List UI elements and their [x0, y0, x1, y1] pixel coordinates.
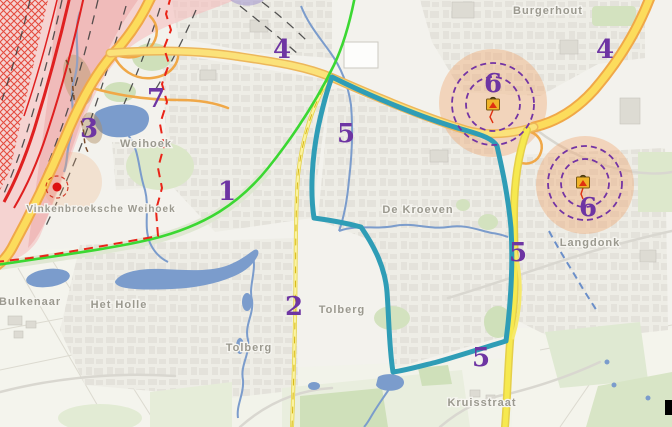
zone-number-5-east: 5: [509, 238, 527, 268]
zone-number-1: 1: [218, 177, 236, 207]
place-label: Tolberg: [319, 304, 366, 316]
zone-number-4-east: 4: [596, 35, 614, 65]
place-label: Bulkenaar: [0, 296, 61, 308]
zone-number-4-west: 4: [273, 35, 291, 65]
place-label: De Kroeven: [382, 204, 453, 216]
zone-number-6-east: 6: [579, 193, 597, 223]
zone-number-2: 2: [285, 292, 303, 322]
zone-number-6-north: 6: [484, 69, 502, 99]
place-label: Weihoek: [120, 138, 172, 150]
clipped-edge-artifact: [665, 400, 672, 415]
zone-number-3: 3: [80, 114, 98, 144]
place-label: Tolberg: [226, 342, 273, 354]
map-canvas[interactable]: Burgerhout Weihoek Vinkenbroeksche Weiho…: [0, 0, 672, 427]
zone-number-5-south: 5: [472, 343, 490, 373]
place-label: Kruisstraat: [447, 397, 516, 409]
place-label: Burgerhout: [513, 5, 583, 17]
place-label: Vinkenbroeksche Weihoek: [26, 204, 175, 215]
zone-number-5-center: 5: [337, 119, 355, 149]
place-label: Langdonk: [560, 237, 621, 249]
place-label: Het Holle: [91, 299, 148, 311]
map-viewport[interactable]: Burgerhout Weihoek Vinkenbroeksche Weiho…: [0, 0, 672, 427]
zone-number-7: 7: [147, 84, 165, 114]
hazard-point-dot: [53, 183, 62, 192]
